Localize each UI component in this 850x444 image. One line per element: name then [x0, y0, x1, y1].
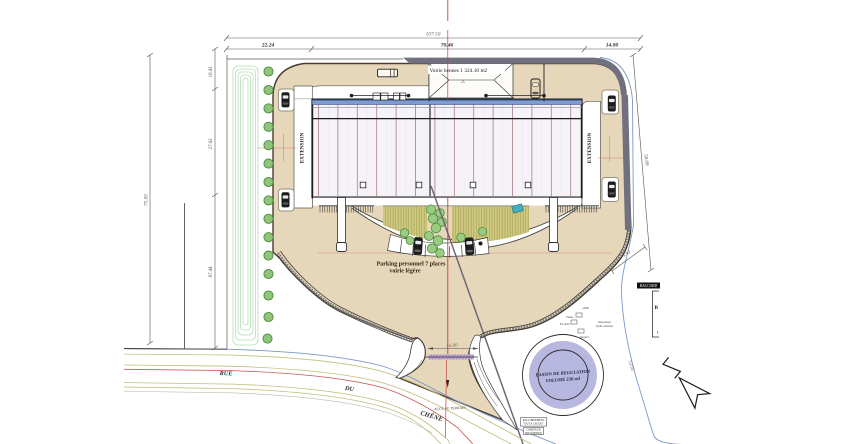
svg-text:△: △ [461, 79, 465, 84]
svg-text:75.00: 75.00 [144, 194, 150, 206]
svg-text:TOUT A L'EGOUT: TOUT A L'EGOUT [523, 423, 544, 426]
svg-text:voirie légère: voirie légère [389, 269, 421, 275]
svg-text:87.44: 87.44 [209, 266, 214, 277]
svg-text:Parking personnel 7 places: Parking personnel 7 places [377, 262, 447, 268]
svg-text:107.50: 107.50 [426, 32, 441, 38]
svg-text:Vanne: Vanne [566, 315, 574, 319]
svg-text:70.46: 70.46 [441, 43, 454, 49]
svg-text:D'EAU(EXIST): D'EAU(EXIST) [525, 432, 542, 435]
svg-text:hydrocarbures: hydrocarbures [596, 324, 614, 328]
svg-text:22.24: 22.24 [261, 43, 275, 49]
svg-text:EXTENSION: EXTENSION [300, 132, 306, 163]
svg-text:B: B [655, 305, 659, 311]
svg-text:RACCORDEMENT: RACCORDEMENT [523, 419, 545, 422]
svg-text:14.80: 14.80 [606, 43, 619, 49]
svg-text:16.00: 16.00 [446, 343, 458, 349]
svg-text:Ex.arrêt: Ex.arrêt [560, 322, 570, 326]
svg-text:-2600: -2600 [582, 306, 589, 310]
svg-text:Voirie bennes 1 324.10 m2: Voirie bennes 1 324.10 m2 [430, 68, 488, 74]
svg-text:10.43: 10.43 [209, 66, 214, 77]
svg-text:RUE: RUE [219, 370, 233, 377]
svg-text:Regard: Regard [580, 335, 589, 339]
svg-text:RACCORD: RACCORD [640, 284, 658, 288]
svg-text:EXTENSION: EXTENSION [587, 132, 593, 163]
svg-text:27.63: 27.63 [209, 138, 214, 149]
